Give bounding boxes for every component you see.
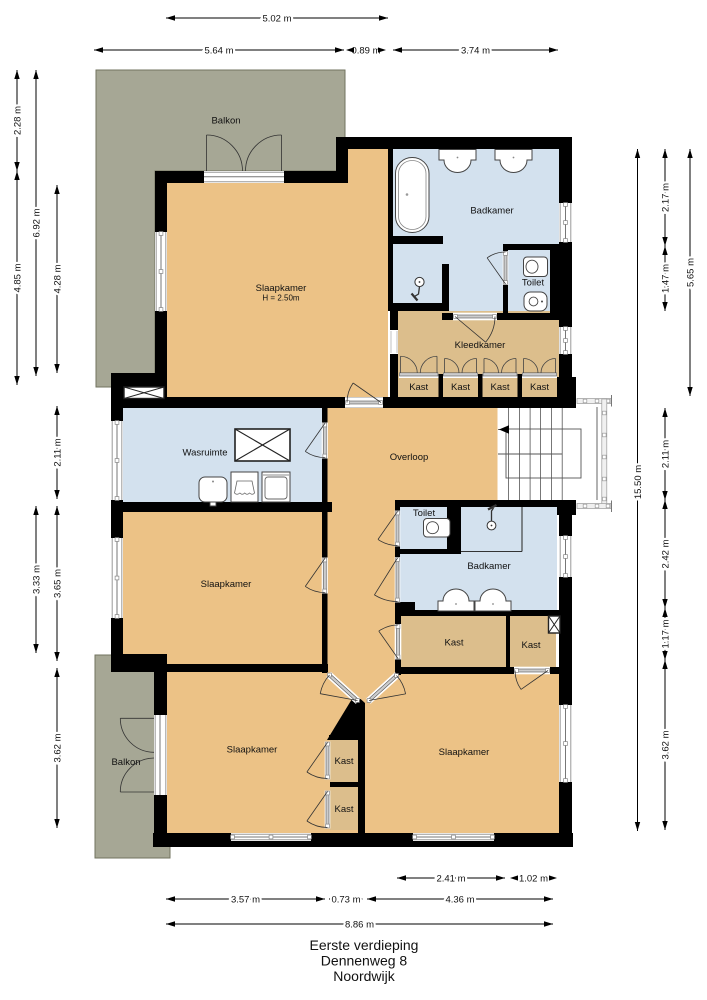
svg-text:Toilet: Toilet (413, 508, 436, 519)
svg-text:Kast: Kast (490, 382, 509, 393)
svg-text:6.92 m: 6.92 m (31, 208, 42, 237)
svg-text:4.28 m: 4.28 m (52, 264, 63, 293)
svg-text:15.50 m: 15.50 m (633, 465, 644, 499)
svg-text:3.62 m: 3.62 m (52, 733, 63, 762)
svg-text:H = 2.50m: H = 2.50m (262, 294, 299, 303)
svg-text:3.57 m: 3.57 m (231, 894, 260, 905)
svg-text:Balkon: Balkon (111, 757, 140, 768)
svg-text:Eerste verdieping: Eerste verdieping (310, 937, 419, 953)
svg-text:3.62 m: 3.62 m (660, 730, 671, 759)
svg-text:Wasruimte: Wasruimte (182, 448, 227, 459)
svg-text:Balkon: Balkon (211, 116, 240, 127)
svg-text:2.41 m: 2.41 m (436, 873, 465, 884)
svg-text:Slaapkamer: Slaapkamer (439, 747, 490, 758)
svg-text:Kast: Kast (334, 804, 353, 815)
svg-text:Kleedkamer: Kleedkamer (455, 340, 506, 351)
svg-text:2.11 m: 2.11 m (52, 438, 63, 466)
svg-text:2.17 m: 2.17 m (660, 183, 671, 212)
svg-text:Kast: Kast (409, 382, 428, 393)
svg-text:8.86 m: 8.86 m (345, 919, 374, 930)
svg-text:2.11 m: 2.11 m (660, 440, 671, 468)
svg-text:0.73 m: 0.73 m (331, 894, 360, 905)
svg-text:Toilet: Toilet (522, 278, 545, 289)
svg-text:3.65 m: 3.65 m (52, 569, 63, 598)
svg-text:Badkamer: Badkamer (467, 561, 510, 572)
svg-text:Slaapkamer: Slaapkamer (256, 283, 307, 294)
svg-text:3.74 m: 3.74 m (461, 45, 490, 56)
svg-text:Dennenweg 8: Dennenweg 8 (321, 953, 408, 969)
svg-text:Slaapkamer: Slaapkamer (201, 579, 252, 590)
svg-text:Badkamer: Badkamer (470, 206, 513, 217)
svg-text:5.64 m: 5.64 m (204, 45, 233, 56)
svg-text:0.89 m: 0.89 m (351, 45, 380, 56)
svg-text:3.33 m: 3.33 m (31, 565, 42, 594)
svg-text:4.85 m: 4.85 m (12, 263, 23, 292)
svg-text:Kast: Kast (444, 638, 463, 649)
svg-text:1.47 m: 1.47 m (660, 264, 671, 293)
svg-text:Kast: Kast (530, 382, 549, 393)
svg-text:1.17 m: 1.17 m (660, 619, 671, 648)
svg-text:5.02 m: 5.02 m (262, 13, 291, 24)
svg-text:Noordwijk: Noordwijk (333, 968, 395, 984)
svg-text:2.28 m: 2.28 m (12, 106, 23, 135)
svg-text:Kast: Kast (521, 640, 540, 651)
svg-text:Kast: Kast (334, 756, 353, 767)
svg-text:Slaapkamer: Slaapkamer (227, 745, 278, 756)
svg-text:Overloop: Overloop (390, 452, 429, 463)
svg-text:1.02 m: 1.02 m (519, 873, 548, 884)
svg-text:2.42 m: 2.42 m (660, 539, 671, 568)
svg-text:5.65 m: 5.65 m (685, 258, 696, 287)
svg-text:4.36 m: 4.36 m (445, 894, 474, 905)
svg-text:Kast: Kast (451, 382, 470, 393)
